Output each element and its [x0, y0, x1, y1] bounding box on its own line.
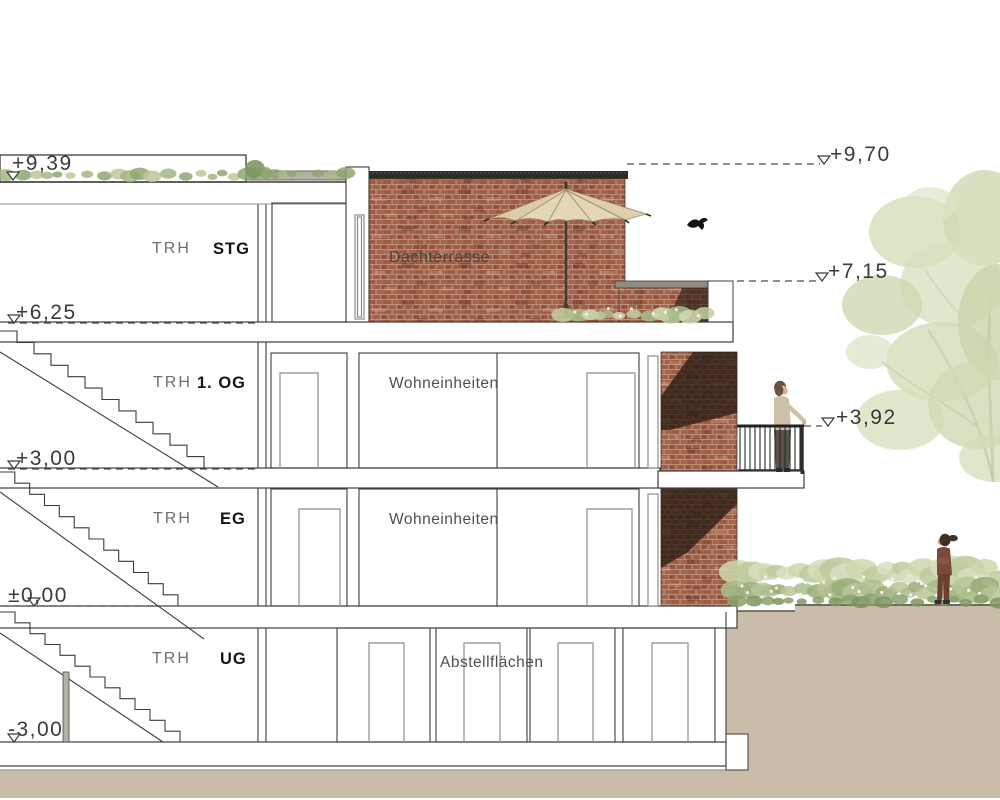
room-label-roof-terrace: Dachterrasse	[389, 249, 490, 266]
stairwell-label-eg: TRH	[153, 510, 192, 527]
section-canvas: +9,39 +9,70 +7,15 +6,25 +3,92 +3,00 ±0,0…	[0, 0, 1000, 800]
parapet-coping	[615, 281, 713, 288]
wall-coping	[366, 171, 628, 179]
tree-illustration	[842, 170, 1000, 482]
architectural-section-drawing: +9,39 +9,70 +7,15 +6,25 +3,92 +3,00 ±0,0…	[0, 0, 1000, 800]
room-label-units-og1: Wohneinheiten	[389, 375, 499, 392]
floor-labels: TRH STG TRH 1. OG TRH EG TRH UG	[152, 240, 250, 668]
balcony-railing	[737, 426, 804, 474]
stair-flights	[0, 331, 218, 742]
stairwell-label-ug: TRH	[152, 650, 191, 667]
bird-icon	[687, 218, 708, 230]
elevation-label-eg-floor: ±0,00	[8, 584, 68, 607]
elevation-label-stg-floor: +6,25	[16, 301, 77, 324]
elevation-label-og1-floor: +3,00	[16, 447, 77, 470]
stairwell-label-stg: TRH	[152, 240, 191, 257]
foundation-footing	[726, 734, 748, 770]
room-label-storage-ug: Abstellflächen	[440, 654, 544, 671]
elevation-label-wall-top: +9,70	[830, 143, 891, 166]
elevation-label-upper-roof: +7,15	[828, 260, 889, 283]
floor-code-ug: UG	[220, 650, 247, 668]
stairwell-label-og1: TRH	[153, 374, 192, 391]
floor-code-stg: STG	[213, 240, 250, 258]
stair-support-wall	[63, 672, 69, 742]
balcony-slab	[658, 471, 804, 488]
room-label-units-eg: Wohneinheiten	[389, 511, 499, 528]
elevation-label-trh-roof: +9,39	[12, 152, 73, 175]
floor-code-og1: 1. OG	[197, 374, 246, 392]
elevation-label-ug-floor: -3,00	[8, 718, 63, 741]
floor-code-eg: EG	[220, 510, 246, 528]
elevation-label-balcony: +3,92	[836, 406, 897, 429]
